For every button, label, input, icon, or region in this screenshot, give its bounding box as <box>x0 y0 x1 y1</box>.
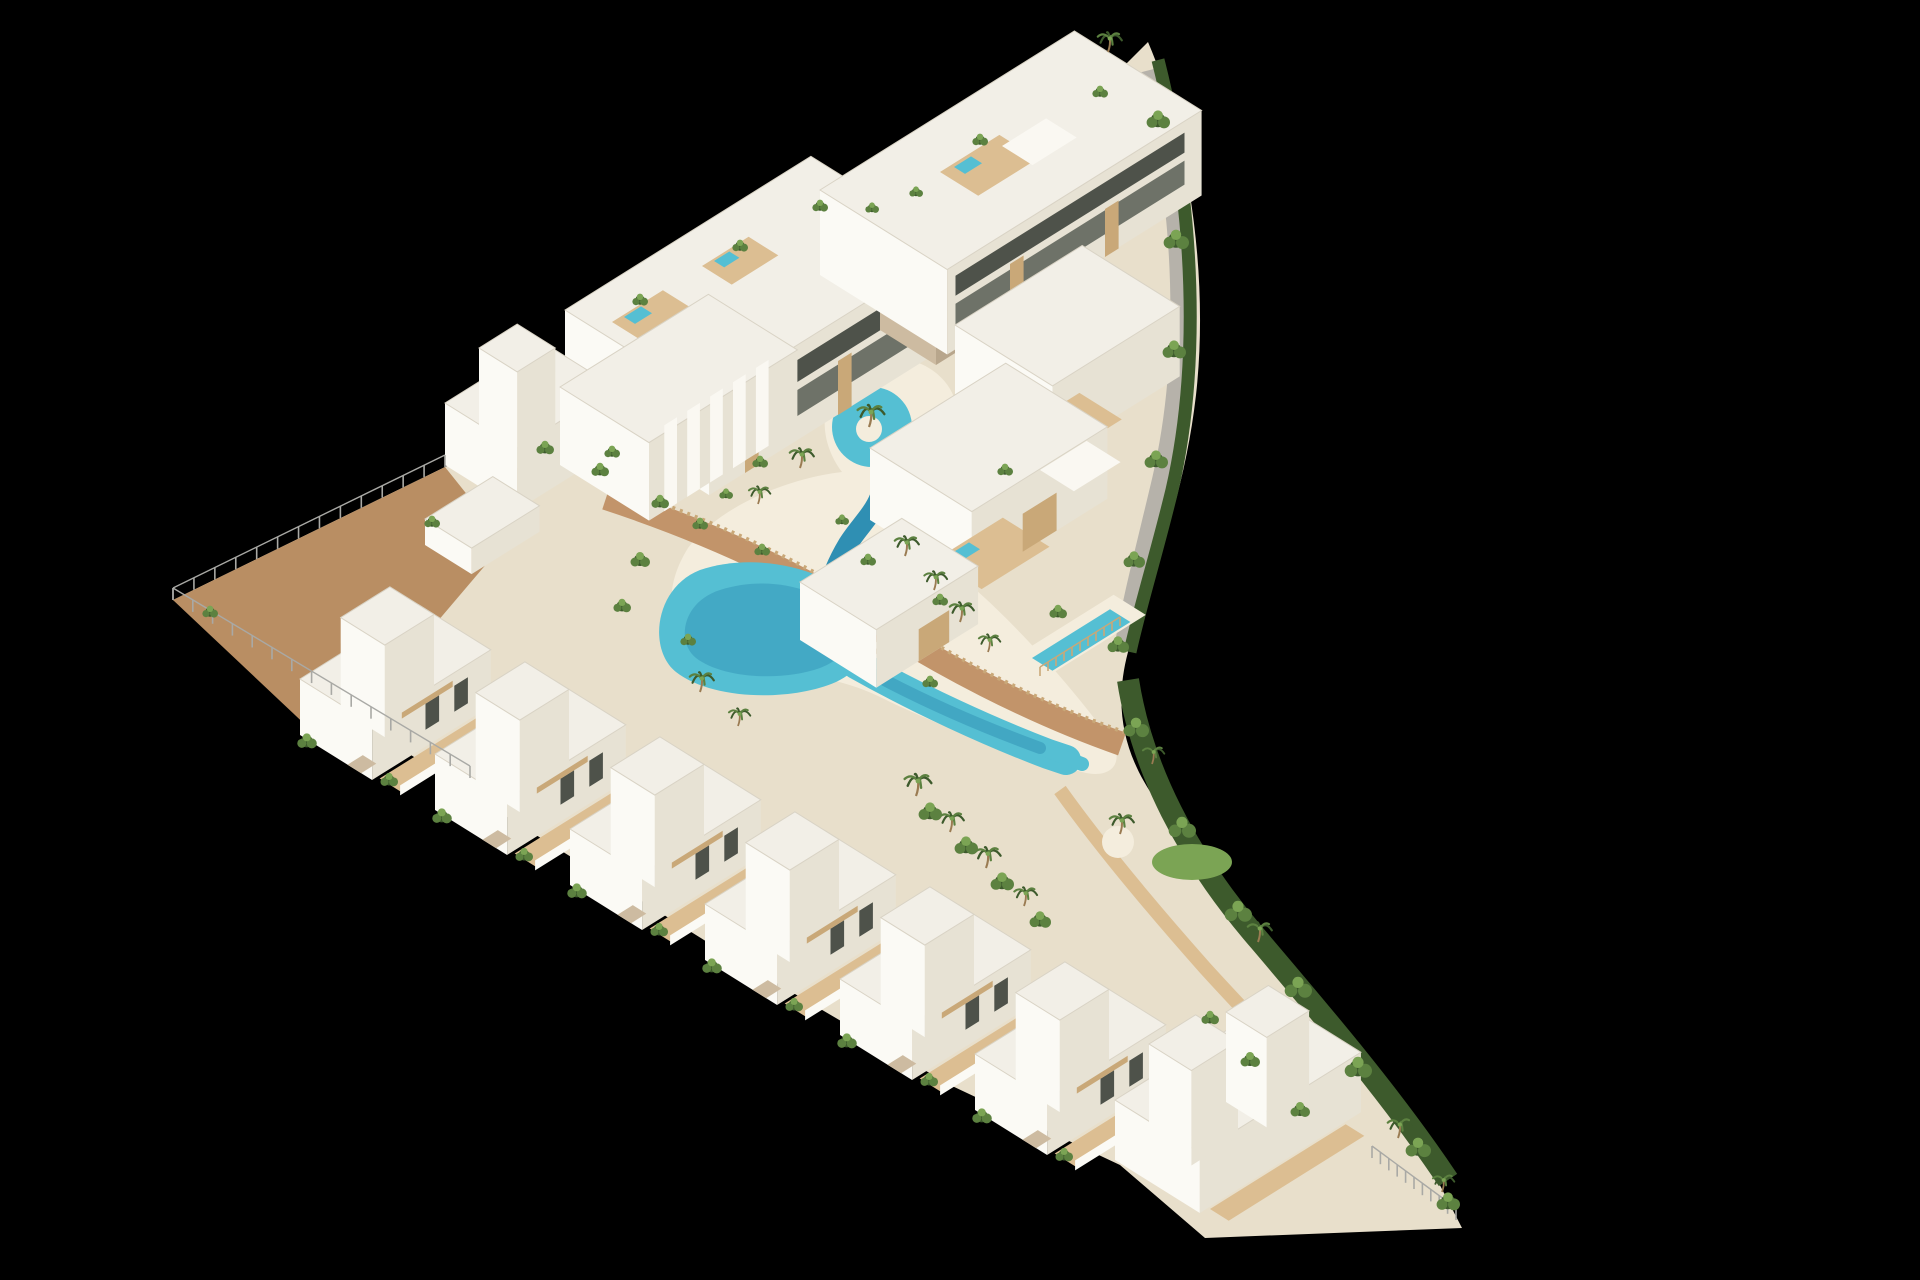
palm-crown <box>800 452 804 456</box>
shrub-foliage <box>708 958 716 966</box>
lawn-patch <box>1152 844 1232 880</box>
shrub-foliage <box>1054 605 1061 612</box>
row-villa-3-tower <box>611 737 704 887</box>
shrub-foliage <box>1131 718 1141 728</box>
shrub-foliage <box>927 676 933 682</box>
shrub-foliage <box>869 202 875 208</box>
palm-crown <box>986 851 991 856</box>
shrub-foliage <box>723 488 729 494</box>
palm-crown <box>758 490 762 494</box>
shrub-foliage <box>759 544 765 550</box>
shrub-foliage <box>1060 1148 1067 1155</box>
shrub-foliage <box>997 872 1007 882</box>
shrub-foliage <box>1151 450 1161 460</box>
shrub-foliage <box>1153 110 1163 120</box>
shrub-foliage <box>438 808 446 816</box>
apt-b-wood-pillar-2 <box>1105 201 1119 258</box>
palm-crown <box>700 676 704 680</box>
villa-arches-fin-1 <box>664 417 677 511</box>
shrub-foliage <box>637 294 643 300</box>
villa-arches-fin-4 <box>733 374 746 468</box>
palm-crown <box>1024 891 1028 895</box>
apt-a-wood-pillar-2 <box>838 353 852 416</box>
palm-crown <box>738 712 742 716</box>
shrub-foliage <box>303 733 311 741</box>
row-villa-4-tower <box>746 812 839 962</box>
shrub-foliage <box>978 1108 986 1116</box>
shrub-foliage <box>1246 1052 1254 1060</box>
shrub-foliage <box>913 186 919 192</box>
villa-arches-fin-5 <box>756 360 769 454</box>
palm-crown <box>1120 818 1124 822</box>
palm-crown <box>950 816 954 820</box>
row-villa-6-tower <box>1016 962 1109 1112</box>
shrub-foliage <box>541 441 548 448</box>
row-villa-1-tower <box>341 587 434 737</box>
shrub-foliage <box>817 200 823 206</box>
pool-island <box>856 416 882 442</box>
shrub-foliage <box>961 836 971 846</box>
shrub-foliage <box>697 518 703 524</box>
palm-crown <box>960 606 964 610</box>
shrub-foliage <box>1002 464 1008 470</box>
villa-arches-fin-2 <box>687 403 700 497</box>
shrub-foliage <box>925 802 935 812</box>
shrub-foliage <box>596 463 603 470</box>
villa-arches-fin-3 <box>710 389 723 483</box>
palm-crown <box>1398 1122 1402 1126</box>
shrub-foliage <box>1292 977 1303 988</box>
shrub-foliage <box>573 883 581 891</box>
shrub-foliage <box>925 1073 932 1080</box>
corner-villa-tower-1 <box>1149 1015 1238 1166</box>
shrub-foliage <box>429 516 435 522</box>
shrub-foliage <box>1169 340 1179 350</box>
shrub-foliage <box>1413 1138 1423 1148</box>
shrub-foliage <box>865 554 871 560</box>
palm-crown <box>1152 750 1156 754</box>
shrub-foliage <box>1232 901 1243 912</box>
shrub-foliage <box>790 998 797 1005</box>
shrub-foliage <box>839 514 845 520</box>
palm-crown <box>988 638 992 642</box>
palm-crown <box>905 540 909 544</box>
shrub-foliage <box>937 594 943 600</box>
shrub-foliage <box>1176 817 1187 828</box>
shrub-foliage <box>656 495 663 502</box>
palm-crown <box>934 575 938 579</box>
shrub-foliage <box>655 923 662 930</box>
shrub-foliage <box>685 634 691 640</box>
shrub-foliage <box>618 599 625 606</box>
site-plan-render <box>0 0 1920 1280</box>
shrub-foliage <box>609 446 615 452</box>
shrub-foliage <box>737 240 743 246</box>
shrub-foliage <box>207 606 213 612</box>
shrub-foliage <box>1114 636 1123 645</box>
shrub-foliage <box>1206 1011 1213 1018</box>
shrub-foliage <box>385 773 392 780</box>
shrub-foliage <box>520 848 527 855</box>
palm-crown <box>1258 926 1262 930</box>
row-villa-2-tower <box>476 662 569 812</box>
palm-island-south <box>1102 826 1134 858</box>
palm-crown <box>1442 1178 1446 1182</box>
shrub-foliage <box>1352 1057 1363 1068</box>
shrub-foliage <box>757 456 763 462</box>
palm-crown <box>869 410 874 415</box>
shrub-foliage <box>1097 86 1103 92</box>
row-villa-5-tower <box>881 887 974 1037</box>
shrub-foliage <box>977 134 983 140</box>
shrub-foliage <box>843 1033 851 1041</box>
shrub-foliage <box>1036 911 1045 920</box>
shrub-foliage <box>1443 1192 1453 1202</box>
palm-crown <box>1108 36 1112 40</box>
palm-crown <box>916 779 921 784</box>
shrub-foliage <box>1296 1102 1304 1110</box>
shrub-foliage <box>1130 551 1139 560</box>
shrub-foliage <box>636 552 644 560</box>
shrub-foliage <box>1171 230 1181 240</box>
